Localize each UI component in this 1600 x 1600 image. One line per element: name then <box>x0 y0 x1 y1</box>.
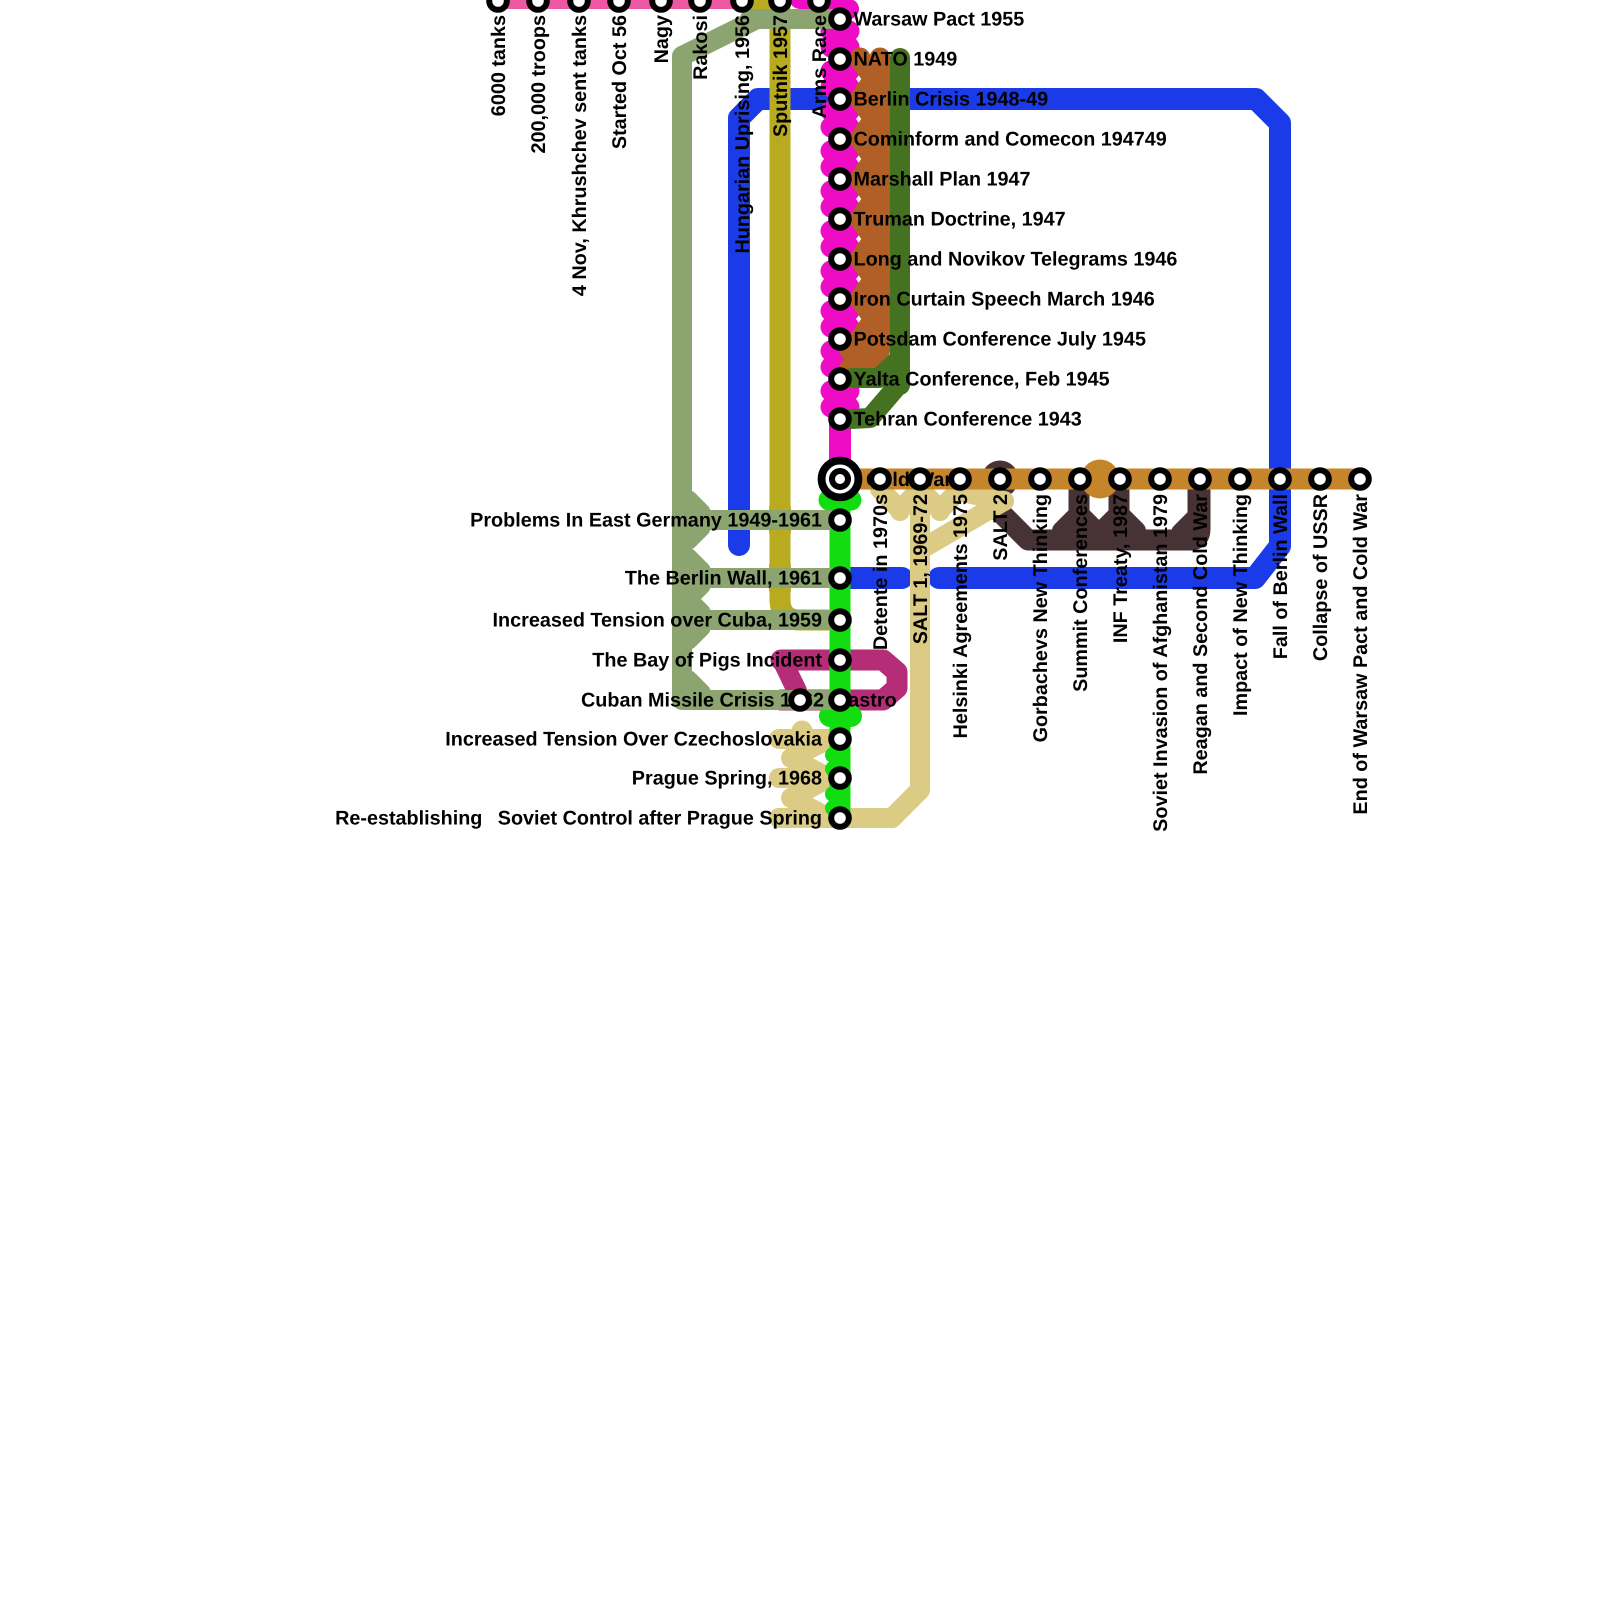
svg-text:Cuban Missile Crisis 1962: Cuban Missile Crisis 1962 <box>581 690 824 712</box>
svg-text:Rakosi: Rakosi <box>690 15 712 80</box>
svg-text:NATO 1949: NATO 1949 <box>854 49 958 71</box>
svg-text:Arms Race: Arms Race <box>809 15 831 118</box>
svg-text:Reagan and Second Cold War: Reagan and Second Cold War <box>1190 494 1212 775</box>
svg-text:Gorbachevs New Thinking: Gorbachevs New Thinking <box>1030 494 1052 742</box>
svg-text:Impact of New Thinking: Impact of New Thinking <box>1230 494 1252 716</box>
svg-text:Berlin Crisis 1948-49: Berlin Crisis 1948-49 <box>854 89 1049 111</box>
svg-text:Tehran Conference 1943: Tehran Conference 1943 <box>854 409 1082 431</box>
svg-text:200,000 troops: 200,000 troops <box>528 15 550 154</box>
svg-text:End of Warsaw Pact and Cold Wa: End of Warsaw Pact and Cold War <box>1350 494 1372 815</box>
svg-text:Potsdam Conference July 1945: Potsdam Conference July 1945 <box>854 329 1146 351</box>
svg-text:Problems In East Germany 1949-: Problems In East Germany 1949-1961 <box>470 510 822 532</box>
svg-text:Fall of Berlin Wall: Fall of Berlin Wall <box>1270 494 1292 659</box>
svg-text:INF Treaty, 1987: INF Treaty, 1987 <box>1110 494 1132 643</box>
svg-text:Re-establishing Soviet Contro: Re-establishing Soviet Control after Pra… <box>335 808 822 830</box>
svg-text:Yalta Conference, Feb 1945: Yalta Conference, Feb 1945 <box>854 369 1110 391</box>
svg-text:The Berlin Wall, 1961: The Berlin Wall, 1961 <box>625 568 822 590</box>
svg-text:Helsinki Agreements 1975: Helsinki Agreements 1975 <box>950 494 972 738</box>
svg-text:SALT 2: SALT 2 <box>990 494 1012 561</box>
svg-text:Nagy: Nagy <box>651 15 673 63</box>
svg-text:Prague Spring, 1968: Prague Spring, 1968 <box>632 768 822 790</box>
svg-text:The Bay of Pigs Incident: The Bay of Pigs Incident <box>592 650 822 672</box>
svg-text:Soviet Invasion of Afghanistan: Soviet Invasion of Afghanistan 1979 <box>1150 494 1172 832</box>
svg-text:Long and Novikov Telegrams 194: Long and Novikov Telegrams 1946 <box>854 249 1178 271</box>
svg-text:Warsaw Pact 1955: Warsaw Pact 1955 <box>854 9 1025 31</box>
svg-text:Summit Conferences: Summit Conferences <box>1070 494 1092 692</box>
svg-text:Sputnik 1957: Sputnik 1957 <box>770 15 792 137</box>
svg-text:Started Oct 56: Started Oct 56 <box>609 15 631 149</box>
svg-text:Increased Tension Over Czechos: Increased Tension Over Czechoslovakia <box>445 729 823 751</box>
svg-text:Increased Tension over Cuba, 1: Increased Tension over Cuba, 1959 <box>493 610 822 632</box>
svg-text:4 Nov, Khrushchev sent tanks: 4 Nov, Khrushchev sent tanks <box>569 15 591 296</box>
svg-text:Detente in 1970s: Detente in 1970s <box>870 494 892 650</box>
svg-text:Iron Curtain Speech March 1946: Iron Curtain Speech March 1946 <box>854 289 1155 311</box>
svg-text:6000 tanks: 6000 tanks <box>488 15 510 116</box>
svg-text:Collapse of USSR: Collapse of USSR <box>1310 494 1332 661</box>
svg-text:Hungarian Uprising, 1956: Hungarian Uprising, 1956 <box>732 15 754 254</box>
svg-text:Truman Doctrine, 1947: Truman Doctrine, 1947 <box>854 209 1066 231</box>
svg-text:SALT 1, 1969-72: SALT 1, 1969-72 <box>910 494 932 644</box>
svg-text:Marshall Plan 1947: Marshall Plan 1947 <box>854 169 1031 191</box>
svg-text:Cominform and Comecon 194749: Cominform and Comecon 194749 <box>854 129 1167 151</box>
